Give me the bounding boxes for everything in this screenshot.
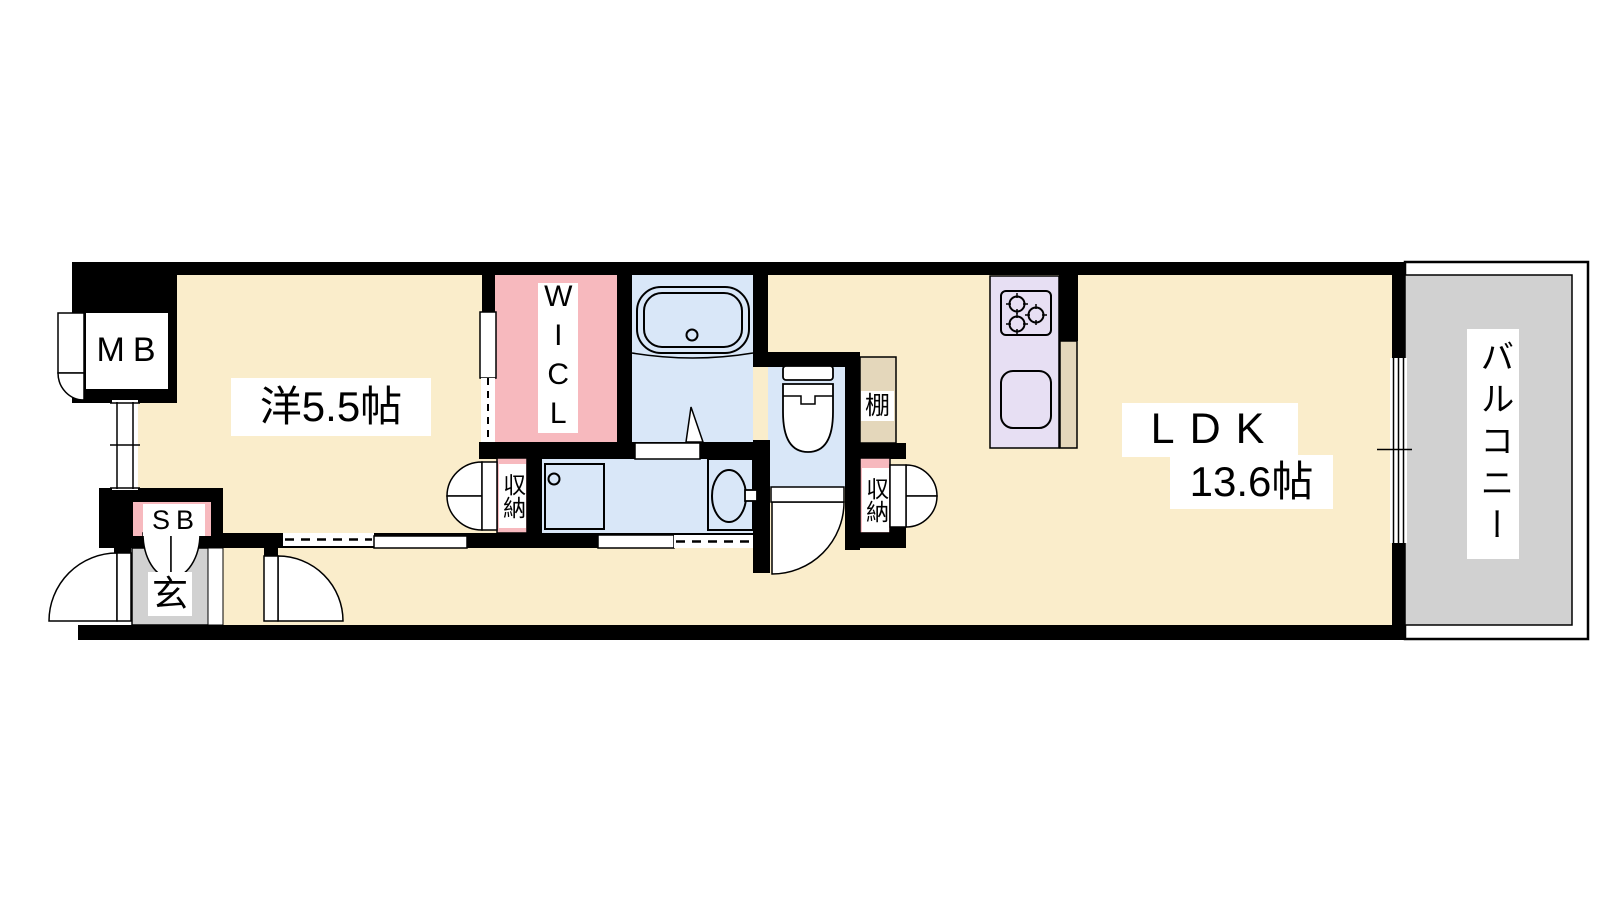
wicl-sliding-door	[480, 312, 496, 442]
meter-box-door	[58, 313, 84, 400]
wall-washroom-top	[479, 442, 770, 459]
entrance-door	[49, 553, 131, 621]
balcony-label: バルコニー	[1467, 329, 1519, 559]
wall-bath-ldk	[753, 275, 768, 355]
wicl-wall-stub	[482, 275, 495, 313]
wall-storage-washroom	[527, 458, 542, 533]
entrance-label: 玄	[148, 572, 192, 616]
floor-plan-drawing	[0, 0, 1600, 900]
washroom-sliding-door	[598, 535, 753, 548]
wall-wicl-bath	[617, 275, 632, 442]
shoe-box-label: SB	[143, 504, 205, 536]
wall-right-upper	[1392, 262, 1405, 358]
wall-washroom-toilet	[753, 440, 770, 573]
entrance-step	[208, 548, 223, 625]
wall-kitchen-stub	[1059, 262, 1078, 341]
wicl-label: WICL	[538, 283, 578, 433]
wall-toilet-right	[845, 355, 860, 550]
shelf-label: 棚	[861, 391, 894, 421]
meter-box-label: MB	[86, 313, 168, 389]
toilet-fixture	[783, 366, 833, 452]
storage-ldk-label: 収納	[862, 468, 889, 532]
wall-top	[72, 262, 1405, 275]
ldk-label-line2: 13.6帖	[1170, 455, 1333, 509]
kitchen-side-panel	[1060, 341, 1077, 448]
floor-plan: 洋5.5帖 WICL LDK 13.6帖 バルコニー MB SB 玄 棚 収納 …	[0, 0, 1600, 900]
ldk-label-line1: LDK	[1122, 403, 1298, 457]
bedroom-sliding-door	[283, 533, 467, 548]
wall-toilet-top	[753, 352, 860, 367]
wall-shelf-bottom	[858, 443, 906, 459]
washroom-floor	[542, 459, 753, 533]
wall-bottom	[78, 625, 1405, 640]
bedroom-label: 洋5.5帖	[231, 378, 431, 436]
bedroom-window	[110, 400, 140, 490]
storage-hall-label: 収納	[499, 464, 526, 528]
